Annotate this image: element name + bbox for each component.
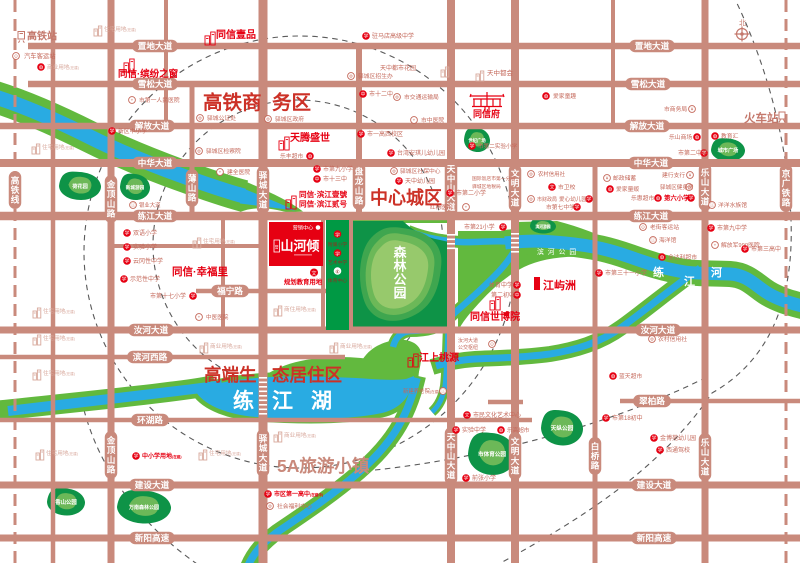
svg-text:第二初中: 第二初中	[491, 291, 515, 299]
svg-text:滨河公园: 滨河公园	[537, 247, 580, 256]
svg-text:顶: 顶	[107, 445, 116, 455]
svg-text:同信·滨江贰号: 同信·滨江贰号	[299, 199, 347, 209]
svg-text:乐惠超市: 乐惠超市	[631, 194, 654, 202]
svg-text:驿: 驿	[259, 434, 268, 444]
svg-text:金达利超市: 金达利超市	[668, 253, 697, 261]
svg-text:⊛: ⊛	[197, 149, 201, 154]
svg-text:汝河大道: 汝河大道	[641, 324, 676, 335]
svg-text:誉: 誉	[275, 245, 279, 250]
svg-text:市中医院: 市中医院	[421, 116, 444, 124]
svg-text:同信府: 同信府	[473, 108, 500, 119]
svg-text:天中都会: 天中都会	[487, 68, 514, 77]
svg-text:示范性中学: 示范性中学	[130, 275, 160, 283]
svg-text:城: 城	[259, 442, 268, 453]
svg-text:城: 城	[259, 179, 268, 190]
svg-text:学: 学	[464, 475, 469, 482]
svg-text:解放大道: 解放大道	[630, 120, 665, 131]
svg-text:附属小学: 附属小学	[328, 241, 347, 248]
svg-text:中: 中	[447, 172, 456, 183]
svg-text:银业大道: 银业大道	[139, 201, 161, 209]
svg-text:市一高西校区: 市一高西校区	[367, 130, 403, 138]
svg-text:中: 中	[515, 292, 520, 299]
svg-text:文: 文	[311, 270, 316, 277]
svg-text:学: 学	[389, 150, 394, 157]
svg-text:滨河西路: 滨河西路	[133, 351, 168, 362]
svg-text:市民文化艺术中心: 市民文化艺术中心	[473, 411, 521, 419]
svg-text:⊛: ⊛	[395, 95, 399, 100]
svg-text:山河倾: 山河倾	[280, 239, 319, 254]
svg-text:线: 线	[11, 194, 20, 205]
svg-text:公交枢纽: 公交枢纽	[458, 344, 478, 351]
svg-text:学: 学	[597, 270, 602, 277]
svg-text:学: 学	[709, 225, 714, 232]
svg-text:学: 学	[335, 250, 340, 257]
svg-text:山: 山	[107, 198, 116, 209]
svg-text:国际饭店市第一分局: 国际饭店市第一分局	[472, 175, 515, 182]
svg-text:明: 明	[511, 446, 520, 456]
svg-text:新阳高速: 新阳高速	[135, 532, 170, 543]
svg-text:大: 大	[511, 455, 520, 466]
svg-text:乐: 乐	[701, 167, 710, 178]
svg-text:市体育公园: 市体育公园	[478, 450, 506, 458]
svg-text:市第二中学: 市第二中学	[678, 149, 708, 157]
svg-text:北: 北	[739, 19, 746, 27]
svg-text:⊛: ⊛	[529, 197, 533, 202]
svg-text:大: 大	[511, 187, 520, 198]
svg-text:爱家童趣: 爱家童趣	[553, 92, 576, 100]
svg-text:学: 学	[315, 166, 320, 173]
svg-text:驿城公证处: 驿城公证处	[207, 114, 236, 122]
svg-text:大: 大	[259, 452, 268, 463]
svg-text:新阳高速: 新阳高速	[637, 532, 672, 543]
svg-text:荷花园: 荷花园	[72, 182, 88, 190]
svg-text:道: 道	[259, 198, 268, 209]
svg-text:市十三中: 市十三中	[323, 175, 347, 183]
svg-text:驿: 驿	[259, 171, 268, 181]
svg-text:金: 金	[106, 179, 116, 190]
svg-text:学: 学	[125, 244, 130, 251]
svg-text:驿城区检察院: 驿城区检察院	[206, 147, 241, 155]
svg-text:中医医院: 中医医院	[206, 313, 229, 321]
svg-text:学: 学	[134, 453, 139, 460]
svg-text:道: 道	[701, 465, 710, 476]
svg-text:驿城区招生办: 驿城区招生办	[358, 72, 393, 80]
svg-text:中: 中	[447, 440, 456, 451]
svg-text:路: 路	[107, 207, 116, 218]
svg-text:前张小学: 前张小学	[472, 474, 496, 482]
svg-text:+: +	[465, 205, 468, 210]
svg-text:铁: 铁	[11, 184, 20, 195]
svg-text:天: 天	[447, 164, 456, 174]
svg-text:建全医院: 建全医院	[227, 168, 250, 176]
svg-text:山: 山	[701, 446, 710, 457]
svg-text:山: 山	[355, 185, 364, 196]
svg-text:万南森林公园: 万南森林公园	[128, 504, 159, 511]
svg-text:文: 文	[510, 436, 520, 447]
svg-text:爱心幼儿园: 爱心幼儿园	[559, 195, 587, 203]
svg-text:务区: 务区	[272, 91, 311, 114]
svg-text:+: +	[219, 170, 222, 175]
svg-text:路: 路	[782, 196, 791, 207]
svg-text:建设大道: 建设大道	[636, 479, 672, 490]
svg-text:⊙: ⊙	[14, 54, 18, 59]
svg-text:学: 学	[125, 230, 130, 237]
svg-text:中: 中	[315, 176, 320, 183]
svg-text:市第九中学: 市第九中学	[717, 224, 747, 232]
svg-text:+: +	[714, 243, 717, 248]
svg-text:铁: 铁	[782, 187, 791, 198]
svg-text:市第二实验小学: 市第二实验小学	[478, 142, 518, 150]
svg-text:学: 学	[448, 190, 453, 197]
svg-text:农村信用社: 农村信用社	[658, 335, 687, 343]
svg-text:练江湖: 练江湖	[233, 389, 350, 413]
svg-text:滨河游园: 滨河游园	[535, 224, 550, 229]
svg-text:路: 路	[591, 460, 600, 471]
svg-text:海洋馆: 海洋馆	[659, 236, 677, 244]
svg-text:市财政局: 市财政局	[537, 196, 557, 203]
svg-text:艺术中学: 艺术中学	[328, 259, 347, 266]
svg-text:新城游园: 新城游园	[126, 184, 145, 191]
svg-text:乐高超市: 乐高超市	[507, 426, 530, 434]
svg-text:天腾盛世: 天腾盛世	[290, 131, 330, 144]
svg-text:⊛: ⊛	[650, 337, 654, 342]
svg-text:市交通运输局: 市交通运输局	[404, 93, 439, 101]
svg-text:⊛: ⊛	[529, 172, 533, 177]
svg-text:④: ④	[335, 269, 340, 275]
svg-text:营销中心: 营销中心	[293, 224, 314, 232]
svg-text:高铁商: 高铁商	[203, 91, 262, 114]
svg-text:驿城区健身房: 驿城区健身房	[660, 183, 694, 191]
svg-text:江上桃源: 江上桃源	[419, 351, 459, 364]
svg-text:京: 京	[782, 168, 791, 179]
svg-text:洋洋水族馆: 洋洋水族馆	[718, 201, 747, 209]
svg-text:¥: ¥	[606, 176, 609, 181]
svg-text:5A旅游小镇: 5A旅游小镇	[277, 456, 370, 476]
svg-text:学: 学	[587, 196, 592, 203]
svg-text:学: 学	[743, 246, 748, 253]
svg-text:建设大道: 建设大道	[134, 479, 170, 490]
svg-text:学: 学	[335, 231, 340, 238]
svg-text:路: 路	[355, 194, 364, 205]
svg-text:桥: 桥	[591, 450, 600, 461]
svg-text:实验小学: 实验小学	[133, 243, 157, 251]
svg-text:道: 道	[447, 469, 456, 480]
svg-text:体育中心: 体育中心	[328, 277, 347, 284]
svg-text:第六小学: 第六小学	[664, 193, 690, 202]
svg-text:置地大道: 置地大道	[635, 40, 670, 51]
svg-text:台湾安琪儿幼儿园: 台湾安琪儿幼儿园	[397, 149, 445, 157]
svg-text:道: 道	[511, 196, 520, 207]
svg-text:龙: 龙	[354, 175, 364, 186]
svg-text:¥: ¥	[689, 173, 692, 178]
svg-text:新区中小学: 新区中小学	[118, 127, 147, 135]
svg-text:市第三高中: 市第三高中	[751, 245, 781, 253]
svg-text:学: 学	[125, 258, 130, 265]
svg-text:翠柏路: 翠柏路	[639, 395, 665, 406]
svg-text:学: 学	[110, 128, 115, 135]
svg-text:中华大道: 中华大道	[138, 157, 173, 168]
svg-text:+: +	[198, 315, 201, 320]
svg-text:教育汇: 教育汇	[721, 132, 739, 140]
svg-text:文: 文	[465, 412, 470, 419]
svg-text:⊛: ⊛	[392, 169, 396, 174]
svg-text:练江大道: 练江大道	[634, 210, 669, 221]
svg-text:蓝天超市: 蓝天超市	[619, 372, 642, 380]
svg-text:广: 广	[782, 177, 791, 188]
svg-text:市第21小学: 市第21小学	[464, 223, 495, 231]
svg-text:环湖路: 环湖路	[137, 414, 163, 425]
svg-text:实验中学: 实验中学	[462, 426, 486, 434]
svg-text:大: 大	[701, 456, 710, 467]
svg-text:市第二小学: 市第二小学	[456, 189, 486, 197]
svg-text:大: 大	[259, 189, 268, 200]
svg-text:学: 学	[470, 143, 475, 150]
svg-text:薄: 薄	[188, 172, 197, 183]
svg-text:福宁路: 福宁路	[216, 285, 243, 296]
svg-text:⊙: ⊙	[490, 342, 494, 347]
svg-text:学: 学	[658, 447, 663, 454]
svg-text:学: 学	[359, 131, 364, 138]
svg-text:汽车客运站: 汽车客运站	[24, 51, 56, 60]
svg-text:+: +	[413, 118, 416, 123]
svg-text:体育中学: 体育中学	[489, 281, 513, 289]
svg-text:驿城区社保中心: 驿城区社保中心	[400, 167, 441, 175]
svg-text:置地大道: 置地大道	[138, 40, 173, 51]
svg-text:园: 园	[394, 286, 407, 301]
svg-text:路: 路	[107, 463, 116, 474]
svg-text:同信壹品: 同信壹品	[216, 28, 256, 41]
svg-text:顶: 顶	[107, 189, 116, 199]
svg-text:道: 道	[259, 461, 268, 472]
svg-text:同信·缤纷之窗: 同信·缤纷之窗	[118, 68, 179, 80]
svg-text:雪松大道: 雪松大道	[631, 78, 666, 89]
svg-text:中: 中	[361, 91, 366, 98]
svg-text:ⓘ: ⓘ	[131, 202, 136, 209]
svg-text:学: 学	[364, 33, 369, 40]
svg-text:乐: 乐	[701, 437, 710, 448]
svg-text:城市广场: 城市广场	[718, 146, 739, 154]
svg-text:乐山商场: 乐山商场	[669, 133, 692, 141]
svg-text:学: 学	[191, 293, 196, 300]
svg-text:+: +	[131, 98, 134, 103]
svg-text:⊛: ⊛	[266, 117, 270, 122]
svg-text:大: 大	[701, 186, 710, 197]
svg-text:爱家量贩: 爱家量贩	[616, 185, 639, 193]
svg-text:驻马店高级中学: 驻马店高级中学	[372, 32, 414, 40]
svg-text:市卫校: 市卫校	[558, 183, 576, 191]
svg-text:社会福利中心: 社会福利中心	[277, 502, 312, 510]
svg-text:香山公园: 香山公园	[54, 498, 77, 506]
svg-text:山: 山	[188, 182, 197, 193]
svg-text:西通驾校: 西通驾校	[666, 446, 690, 454]
svg-text:金博苑幼儿园: 金博苑幼儿园	[660, 434, 696, 442]
svg-text:老街客运站: 老街客运站	[650, 223, 679, 231]
svg-text:江屿洲: 江屿洲	[543, 278, 576, 292]
svg-text:山: 山	[701, 176, 710, 187]
svg-text:⊛: ⊛	[268, 504, 272, 509]
svg-text:ⓘ: ⓘ	[441, 388, 446, 395]
svg-text:中心城区: 中心城区	[370, 187, 442, 208]
svg-text:金: 金	[106, 435, 116, 446]
svg-text:火车站: 火车站	[744, 111, 779, 125]
svg-text:汝河大道: 汝河大道	[134, 324, 169, 335]
svg-text:市第一人民医院: 市第一人民医院	[139, 96, 180, 104]
svg-text:⊙: ⊙	[641, 225, 645, 230]
svg-text:学: 学	[266, 491, 271, 498]
svg-text:天中幼儿园: 天中幼儿园	[405, 177, 435, 185]
svg-text:学: 学	[122, 276, 127, 283]
svg-text:市第七中学: 市第七中学	[546, 203, 575, 211]
svg-text:⊛: ⊛	[198, 116, 202, 121]
svg-text:⊛: ⊛	[349, 74, 353, 79]
svg-text:天中都市花园: 天中都市花园	[380, 64, 416, 72]
svg-text:大: 大	[447, 460, 456, 471]
svg-text:双语小学: 双语小学	[133, 229, 157, 237]
svg-text:盘: 盘	[355, 166, 364, 177]
svg-text:高: 高	[11, 174, 20, 185]
svg-text:市十二中: 市十二中	[369, 90, 393, 98]
svg-text:练江大道: 练江大道	[138, 210, 173, 221]
svg-text:市第九小学: 市第九小学	[323, 165, 353, 173]
svg-text:同信·幸福里: 同信·幸福里	[172, 265, 228, 278]
svg-text:态居住区: 态居住区	[272, 365, 342, 385]
svg-text:学: 学	[604, 415, 609, 422]
svg-text:¥: ¥	[691, 107, 694, 112]
svg-text:市第18初中: 市第18初中	[612, 414, 643, 422]
svg-text:山: 山	[447, 450, 456, 461]
svg-text:高铁站: 高铁站	[27, 30, 57, 43]
svg-text:江: 江	[684, 274, 695, 288]
svg-text:路: 路	[188, 192, 197, 203]
svg-text:天纵公园: 天纵公园	[551, 424, 574, 432]
svg-text:ⓘ: ⓘ	[710, 202, 715, 209]
svg-text:建行支行: 建行支行	[662, 171, 685, 179]
svg-text:山: 山	[107, 454, 116, 465]
svg-text:道: 道	[511, 464, 520, 475]
svg-text:学: 学	[575, 204, 580, 211]
svg-text:云冈性中学: 云冈性中学	[133, 257, 163, 265]
svg-text:高端生: 高端生	[204, 365, 257, 385]
svg-text:农村信用社: 农村信用社	[538, 170, 566, 178]
svg-text:同信世博院: 同信世博院	[470, 310, 520, 323]
svg-text:文: 文	[550, 184, 555, 191]
svg-text:市商务局: 市商务局	[664, 105, 687, 113]
svg-text:学: 学	[515, 282, 520, 289]
svg-text:规划教育用地: 规划教育用地	[284, 277, 323, 286]
svg-text:河: 河	[711, 265, 722, 279]
svg-text:驿城区政府: 驿城区政府	[275, 115, 304, 123]
svg-text:学: 学	[652, 435, 657, 442]
svg-text:学: 学	[454, 427, 459, 434]
svg-text:邮政储蓄: 邮政储蓄	[613, 174, 636, 182]
svg-text:同信·滨江壹號: 同信·滨江壹號	[299, 189, 347, 199]
svg-text:中华大道: 中华大道	[634, 157, 669, 168]
svg-text:练: 练	[653, 265, 664, 279]
svg-text:学: 学	[397, 178, 402, 185]
svg-text:市第十七小学: 市第十七小学	[150, 292, 186, 300]
svg-text:驿城区地税局: 驿城区地税局	[472, 183, 501, 190]
svg-text:白: 白	[591, 440, 600, 451]
svg-text:市第三十一小学: 市第三十一小学	[605, 269, 647, 277]
svg-text:学: 学	[501, 224, 506, 231]
svg-text:汝河大道: 汝河大道	[458, 337, 478, 344]
svg-text:ⓘ: ⓘ	[651, 237, 656, 244]
svg-text:乐丰超市: 乐丰超市	[280, 152, 303, 160]
